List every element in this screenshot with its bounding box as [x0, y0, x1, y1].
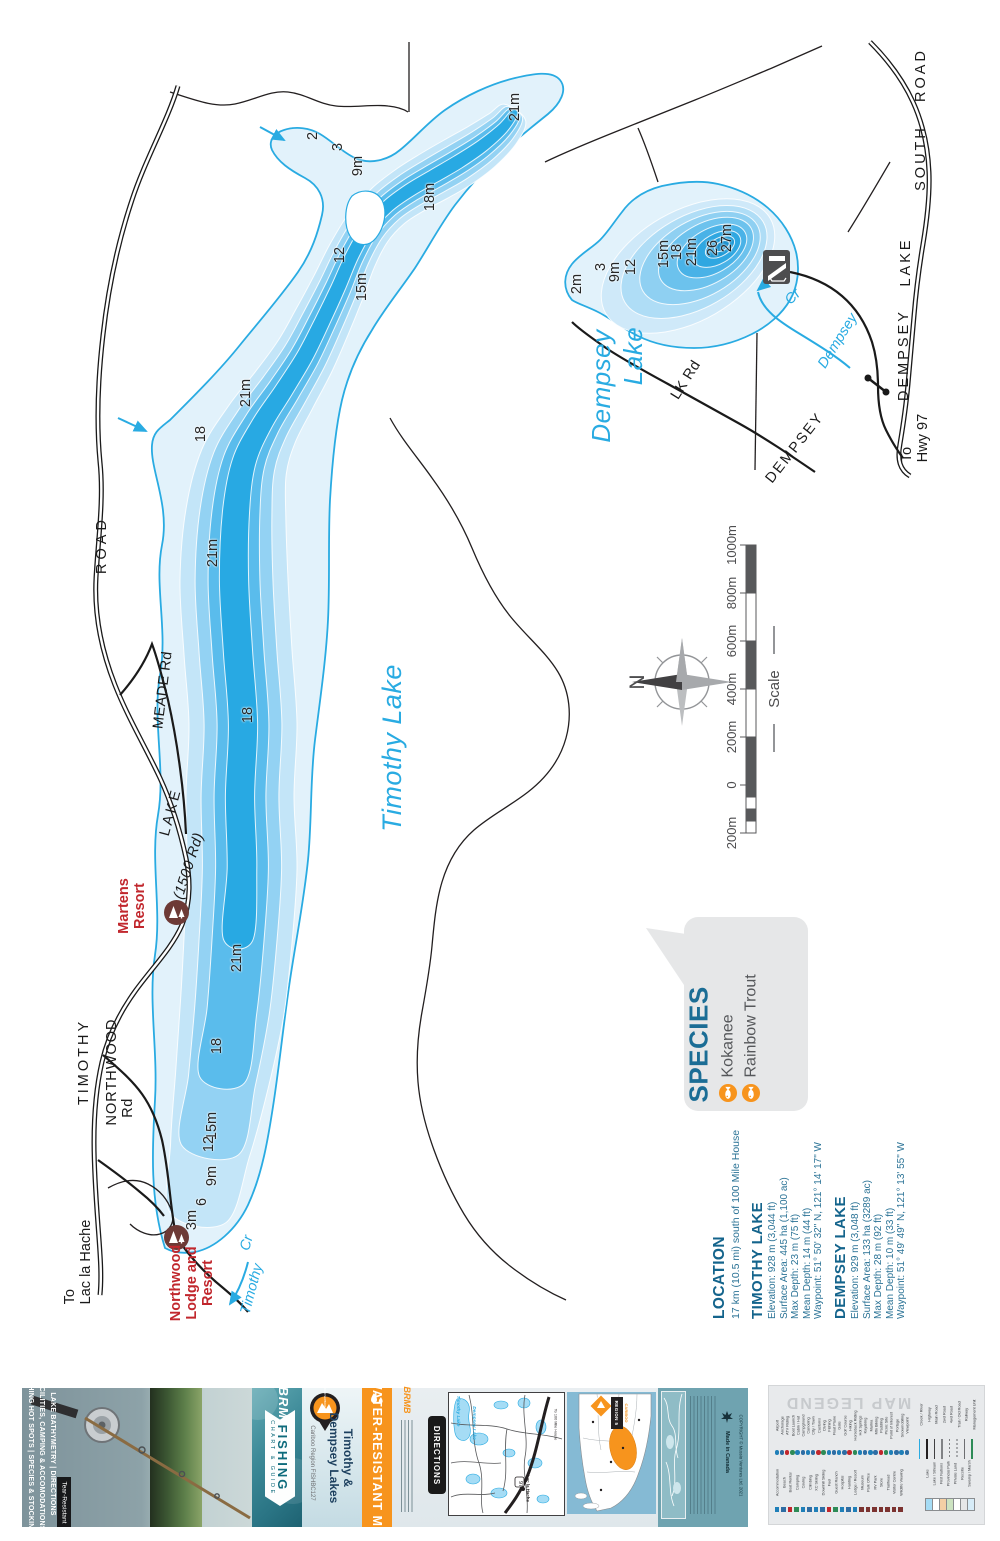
- depth-label: 21m: [505, 47, 525, 167]
- brmb-address-microtext: [401, 1420, 413, 1512]
- location-stat-line: Surface Area: 133 ha (3289 ac): [862, 1087, 874, 1319]
- location-block: LOCATION 17 km (10.5 mi) south of 100 Mi…: [711, 1087, 941, 1347]
- legend-item-label: Recsite: [960, 1454, 965, 1494]
- map-legend-panel: MAP LEGEND AirportAnchorageATV RidingBoa…: [768, 1385, 985, 1525]
- scale-tick-label: 200m: [723, 812, 739, 854]
- legend-item-icon: [790, 1450, 795, 1455]
- resort-label: Northwood Lodge and Resort: [167, 1238, 219, 1328]
- scale-segment: [746, 785, 756, 797]
- scale-bar: [740, 545, 756, 833]
- location-stat-line: Max Depth: 28 m (92 ft): [873, 1087, 885, 1319]
- legend-item-icon: [807, 1507, 812, 1512]
- legend-item-label: Boat Rental: [788, 1463, 793, 1503]
- directions-label: DIRECTIONS: [433, 1425, 442, 1484]
- scale-segment: [746, 809, 756, 821]
- legend-item-icon: [801, 1507, 806, 1512]
- legend-item-icon: [775, 1450, 780, 1455]
- legend-item-icon: [967, 1498, 975, 1511]
- copyright-microtext: [690, 1396, 716, 1514]
- legend-item-label: City / Town: [811, 1406, 816, 1446]
- legend-item-label: Hunting: [846, 1463, 851, 1503]
- legend-item-icon: [795, 1450, 800, 1455]
- legend-item-icon: [853, 1507, 858, 1512]
- location-stat-line: Waypoint: 51° 50' 32" N, 121° 14' 17" W: [813, 1087, 825, 1319]
- destination-label: To Hwy 97: [905, 378, 925, 498]
- legend-item-label: Downhill Skiing: [820, 1463, 825, 1503]
- legend-item-icon: [872, 1507, 877, 1512]
- bc-province-map: REGION 5 CARIBOO: [567, 1392, 656, 1514]
- lake-name-label: Lake: [616, 266, 650, 446]
- depth-label: 18m: [420, 137, 440, 257]
- legend-item-icon: [858, 1450, 863, 1455]
- directions-panel: BRMB DIRECTIONS: [392, 1388, 658, 1527]
- legend-item-label: Camping: [794, 1463, 799, 1503]
- scale-segment: [746, 737, 756, 785]
- legend-item-icon: [879, 1507, 884, 1512]
- legend-item-label: Creek / River: [919, 1395, 924, 1435]
- legend-item-label: Lake: [925, 1454, 930, 1494]
- legend-item-icon: [885, 1507, 890, 1512]
- location-stat-line: Elevation: 929 m (3,048 ft): [850, 1087, 862, 1319]
- map-title: Timothy & Dempsey Lakes: [325, 1412, 355, 1504]
- depth-label: 9m: [348, 106, 368, 226]
- directions-road-map: 97 Timothy Lake Dempsey Lake Lac la Hach…: [448, 1392, 565, 1516]
- scale-tick-label: 400m: [723, 668, 739, 710]
- location-stat-line: Surface Area: 445 ha (1,100 ac): [779, 1087, 791, 1319]
- legend-item-label: Boat Launch: [790, 1406, 795, 1446]
- legend-item-label: Climbing: [807, 1463, 812, 1503]
- chart-guide-label: CHART & GUIDE: [270, 1420, 276, 1495]
- brand-band: BRMB FISHING CHART & GUIDE: [252, 1388, 302, 1527]
- legend-item-icon: [899, 1450, 904, 1455]
- road-label: TIMOTHY: [74, 1002, 94, 1122]
- depth-label: 21m: [203, 493, 223, 613]
- legend-item-icon: [884, 1450, 889, 1455]
- legend-item-label: Private Land: [953, 1454, 958, 1494]
- scale-tick-label: 1000m: [723, 524, 739, 566]
- brmb-logo-small: BRMB: [401, 1383, 413, 1417]
- region-badge-line2: CARIBOO: [623, 1399, 631, 1427]
- location-lake-name: TIMOTHY LAKE: [749, 1087, 766, 1319]
- legend-item-label: Trailhead: [885, 1463, 890, 1503]
- legend-item-icon: [905, 1450, 910, 1455]
- water-resistant-banner: WATER-RESISTANT MAP: [362, 1388, 392, 1527]
- scale-segment: [746, 689, 756, 737]
- legend-item-icon: [811, 1450, 816, 1455]
- legend-item-icon: [806, 1450, 811, 1455]
- legend-item-label: 4wd Road: [949, 1395, 954, 1435]
- cover-photo-panel: FISHING HOT SPOTS | SPECIES & STOCKING F…: [22, 1388, 252, 1527]
- scale-segment: [746, 545, 756, 593]
- legend-item-label: Customs: [816, 1406, 821, 1446]
- legend-item-label: Visitor Centre: [892, 1463, 897, 1503]
- legend-item-label: Guest Ranch: [833, 1463, 838, 1503]
- legend-item-label: Golf Course: [842, 1406, 847, 1446]
- road-label: ROAD: [92, 485, 112, 605]
- depth-label: 21m: [236, 333, 256, 453]
- legend-item-icon: [892, 1507, 897, 1512]
- depth-label: 18: [238, 655, 258, 775]
- scale-rule: [773, 626, 775, 654]
- depth-label: 2: [303, 76, 323, 196]
- legend-item-icon: [794, 1507, 799, 1512]
- legend-item-label: Highway: [926, 1395, 931, 1435]
- scale-segment: [746, 821, 756, 833]
- legend-item-label: Park Office: [866, 1463, 871, 1503]
- depth-label: 3: [328, 87, 348, 207]
- legend-item-icon: [898, 1507, 903, 1512]
- species-item: Kokanee: [719, 926, 738, 1103]
- fishing-chart-page: N Scale SPECIES KokaneeRainbow Trout LOC…: [0, 0, 1000, 1541]
- legend-item-label: Main Road: [934, 1395, 939, 1435]
- title-panel: BACKROAD MAPBOOKS Timothy & Dempsey Lake…: [302, 1388, 362, 1527]
- legend-item-icon: [919, 1439, 921, 1459]
- legend-item-label: 2wd Road: [941, 1395, 946, 1435]
- copyright-line: COPYRIGHT © Mussio Ventures Ltd. 2021: [738, 1403, 745, 1509]
- depth-label: 12: [330, 195, 350, 315]
- region-code: Cariboo Region FISHBC127: [307, 1418, 317, 1508]
- legend-item-label: Caving: [801, 1463, 806, 1503]
- legend-item-label: Gate: [837, 1406, 842, 1446]
- scale-tick-label: 0: [723, 764, 739, 806]
- legend-item-icon: [780, 1450, 785, 1455]
- legend-item-icon: [827, 1450, 832, 1455]
- species-pointer: [646, 928, 686, 988]
- legend-item-label: Trail / Old Road: [956, 1395, 961, 1435]
- legend-item-icon: [820, 1507, 825, 1512]
- legend-item-icon: [873, 1450, 878, 1455]
- copyright-panel: Made in Canada COPYRIGHT © Mussio Ventur…: [658, 1388, 748, 1527]
- scale-tick-label: 200m: [723, 716, 739, 758]
- species-title: SPECIES: [684, 926, 715, 1103]
- inset-label-timothy: Timothy Lake: [454, 1394, 462, 1428]
- maple-leaf-icon: [720, 1410, 734, 1424]
- fishing-chart-chevron: FISHING CHART & GUIDE: [265, 1410, 295, 1506]
- svg-text:97: 97: [517, 1481, 523, 1487]
- location-stat-line: Max Depth: 23 m (75 ft): [790, 1087, 802, 1319]
- legend-item-icon: [833, 1507, 838, 1512]
- species-content: SPECIES KokaneeRainbow Trout: [682, 922, 800, 1107]
- species-item: Rainbow Trout: [742, 926, 761, 1103]
- inset-label-dempsey: Dempsey Lake: [470, 1406, 478, 1440]
- scale-tick-label: 600m: [723, 620, 739, 662]
- destination-label: To Lac la Hache: [68, 1202, 88, 1322]
- legend-item-icon: [837, 1450, 842, 1455]
- depth-label: 21m: [682, 192, 702, 312]
- legend-item-icon: [894, 1450, 899, 1455]
- scale-segment: [746, 641, 756, 689]
- legend-item-label: Wildlife Viewing: [898, 1463, 903, 1503]
- scale-segment: [746, 593, 756, 641]
- legend-item-icon: [827, 1507, 832, 1512]
- location-stat-line: Mean Depth: 14 m (44 ft): [802, 1087, 814, 1319]
- fishing-label: FISHING: [276, 1425, 291, 1492]
- location-stat-line: Waypoint: 51° 49' 49" N, 121° 13' 55" W: [896, 1087, 908, 1319]
- inset-label-town: Lac la Hache: [525, 1474, 532, 1504]
- directions-tab: DIRECTIONS: [428, 1416, 446, 1494]
- legend-item-label: First Nations: [939, 1454, 944, 1494]
- scale-rule: [773, 724, 775, 752]
- pin-ring-text: BACKROAD MAPBOOKS: [322, 1380, 328, 1410]
- legend-item-label: Lake / Stream: [932, 1454, 937, 1494]
- inset-label-dest: To 100 Mile House: [553, 1410, 560, 1440]
- compass-n-label: N: [626, 670, 650, 694]
- legend-item-label: Swamp / Marsh: [967, 1454, 972, 1494]
- legend-item-icon: [879, 1450, 884, 1455]
- tear-resistant-label: Tear-Resistant: [61, 1481, 68, 1523]
- made-in-canada: Made in Canada: [723, 1431, 731, 1473]
- legend-item-label: Management Unit: [971, 1395, 976, 1435]
- legend-item-label: Beach: [781, 1463, 786, 1503]
- legend-item-label: RV Park: [872, 1463, 877, 1503]
- legend-item-icon: [853, 1450, 858, 1455]
- legend-item-label: Railway: [964, 1395, 969, 1435]
- location-subtitle: 17 km (10.5 mi) south of 100 Mile House: [730, 1087, 742, 1319]
- scale-title: Scale: [761, 667, 787, 711]
- legend-item-icon: [889, 1450, 894, 1455]
- legend-item-icon: [775, 1507, 780, 1512]
- depth-label: 21m: [227, 898, 247, 1018]
- legend-item-icon: [816, 1450, 821, 1455]
- region-badge-line1: REGION 5: [613, 1399, 621, 1427]
- legend-item-icon: [863, 1450, 868, 1455]
- legend-item-label: Point of Interest: [889, 1406, 894, 1446]
- map-fragment: [661, 1391, 686, 1519]
- legend-item-icon: [847, 1450, 852, 1455]
- legend-item-label: Accommodation: [775, 1463, 780, 1503]
- legend-item-icon: [866, 1507, 871, 1512]
- legend-item-label: Marina: [868, 1406, 873, 1446]
- water-resistant-label: WATER-RESISTANT MAP: [369, 1397, 385, 1527]
- depth-label: 27m: [717, 178, 737, 298]
- legend-item-icon: [859, 1507, 864, 1512]
- road-label: Rd: [118, 1048, 138, 1168]
- scale-segment: [746, 797, 756, 809]
- legend-item-label: Fuel: [827, 1463, 832, 1503]
- species-name: Kokanee: [719, 1014, 737, 1077]
- boat-launch-icon: [763, 250, 790, 284]
- legend-item-label: ATV Riding: [785, 1406, 790, 1446]
- legend-item-label: Viewpoint: [905, 1406, 910, 1446]
- legend-item-icon: [788, 1507, 793, 1512]
- legend-item-label: Museum: [859, 1463, 864, 1503]
- resort-label: Martens Resort: [107, 861, 159, 951]
- species-name: Rainbow Trout: [742, 974, 760, 1077]
- legend-item-icon: [781, 1507, 786, 1512]
- legend-item-label: Hospital: [840, 1463, 845, 1503]
- legend-item-label: Kayaking: [863, 1406, 868, 1446]
- location-title: LOCATION: [711, 1087, 729, 1319]
- legend-item-label: Portage: [894, 1406, 899, 1446]
- legend-item-icon: [814, 1507, 819, 1512]
- lake-name-label: Dempsey: [584, 296, 618, 476]
- depth-label: 15m: [352, 227, 372, 347]
- legend-item-icon: [842, 1450, 847, 1455]
- depth-label: 18: [191, 374, 211, 494]
- legend-item-icon: [832, 1450, 837, 1455]
- legend-item-label: XC Skiing: [814, 1463, 819, 1503]
- legend-item-icon: [868, 1450, 873, 1455]
- legend-item-label: Store: [879, 1463, 884, 1503]
- road-label: SOUTH: [911, 98, 931, 218]
- location-stat-line: Elevation: 928 m (3,044 ft): [767, 1087, 779, 1319]
- legend-item-icon: [846, 1507, 851, 1512]
- lake-name-label: Timothy Lake: [375, 658, 409, 838]
- location-lake-name: DEMPSEY LAKE: [832, 1087, 849, 1319]
- legend-item-icon: [840, 1507, 845, 1512]
- legend-item-icon: [801, 1450, 806, 1455]
- tear-resistant-tag: Tear-Resistant: [57, 1477, 71, 1527]
- legend-item-label: Lodge / Resort: [853, 1463, 858, 1503]
- location-stat-line: Mean Depth: 10 m (33 ft): [885, 1087, 897, 1319]
- legend-item-icon: [785, 1450, 790, 1455]
- legend-item-label: Provincial Park: [946, 1454, 951, 1494]
- legend-item-icon: [821, 1450, 826, 1455]
- scale-tick-label: 800m: [723, 572, 739, 614]
